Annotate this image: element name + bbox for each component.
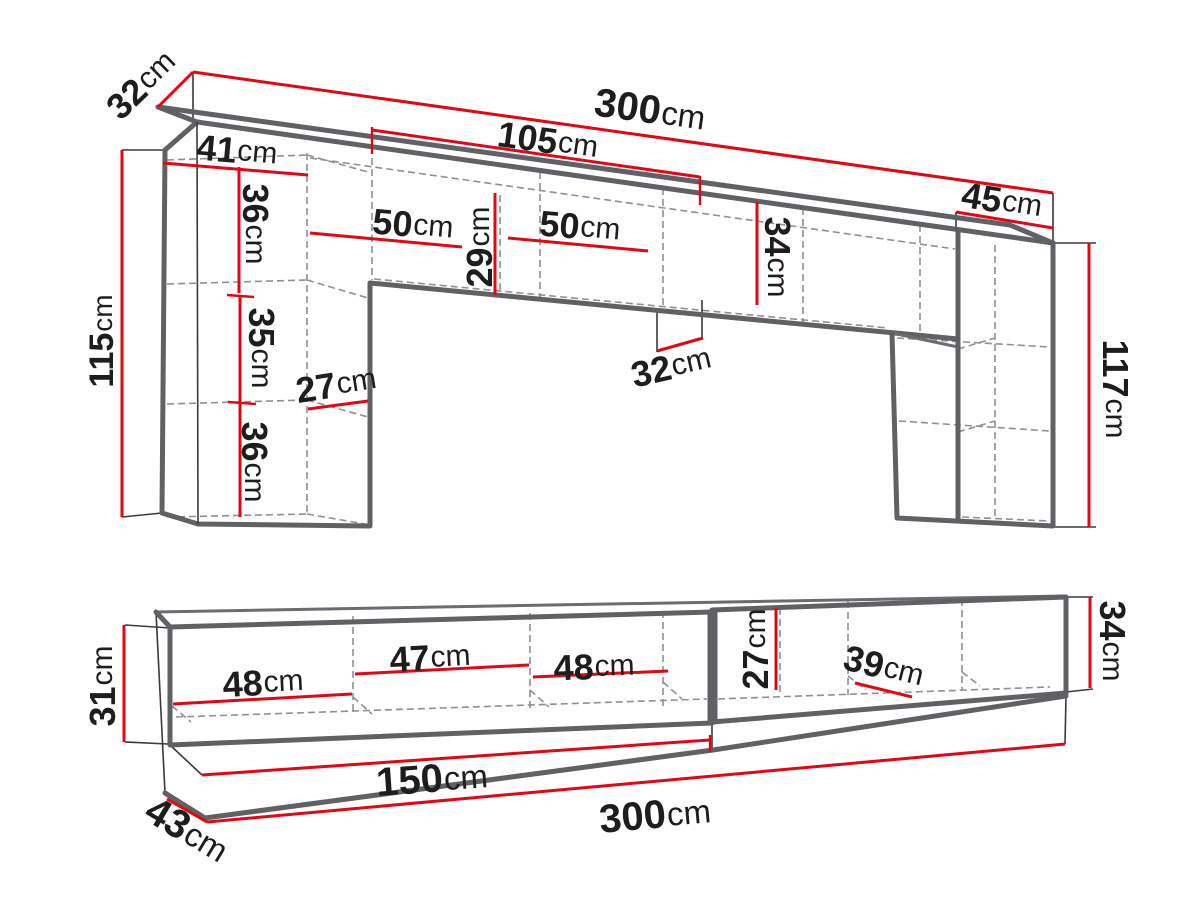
dim-label-31: 31cm (82, 645, 123, 726)
dim-upper-total-width-300: 300cm (193, 72, 1053, 193)
dim-lower-height-31: 31cm (82, 625, 125, 742)
diagram-canvas: 32cm 300cm 105cm 41cm 36cm 50cm 29cm 50c… (0, 0, 1200, 899)
dim-label-34-low: 34cm (1093, 600, 1134, 681)
dim-label-48-right: 48cm (553, 644, 635, 688)
upper-unit-outline (158, 107, 1053, 526)
dim-upper-shelf-50-right: 50cm (508, 202, 648, 251)
dim-label-43: 43cm (137, 788, 236, 872)
dim-label-36-bottom: 36cm (235, 421, 276, 502)
dim-upper-shelf-36-bottom: 36cm (235, 404, 276, 517)
dim-label-27-low: 27cm (735, 608, 776, 689)
dim-upper-shelf-36-top: 36cm (227, 167, 277, 297)
dim-upper-height-29: 29cm (459, 193, 500, 295)
dim-lower-height-34: 34cm (1090, 597, 1134, 688)
dim-lower-compartment-47: 47cm (355, 634, 529, 679)
dim-lower-height-27: 27cm (735, 608, 777, 690)
dim-label-117: 117cm (1096, 339, 1137, 438)
dim-label-115: 115cm (83, 294, 121, 387)
dim-label-300-low: 300cm (597, 788, 712, 842)
dim-lower-compartment-48-left: 48cm (173, 659, 352, 704)
dim-upper-height-115: 115cm (83, 150, 122, 517)
dim-label-29: 29cm (459, 206, 500, 287)
dim-label-36-top: 36cm (236, 183, 277, 264)
dim-lower-compartment-48-right: 48cm (533, 644, 668, 688)
dim-upper-shelf-50-left: 50cm (310, 200, 462, 248)
dim-label-34-top: 34cm (758, 216, 799, 297)
dim-label-39: 39cm (840, 636, 929, 695)
dim-label-50-left: 50cm (371, 200, 455, 248)
dim-lower-compartment-39: 39cm (840, 636, 929, 697)
dim-lower-depth-43: 43cm (137, 788, 236, 872)
dim-upper-height-117: 117cm (1089, 243, 1137, 527)
dim-upper-shelf-35: 35cm (228, 297, 283, 404)
dim-upper-height-34: 34cm (757, 202, 799, 305)
furniture-dimension-diagram: 32cm 300cm 105cm 41cm 36cm 50cm 29cm 50c… (0, 0, 1200, 899)
dim-label-50-right: 50cm (538, 202, 622, 250)
dim-label-35: 35cm (242, 307, 283, 388)
dim-label-105: 105cm (495, 113, 601, 168)
dim-upper-depth-32-mid: 32cm (627, 337, 715, 395)
dim-label-47: 47cm (388, 634, 471, 679)
dim-upper-depth-27: 27cm (293, 357, 379, 410)
